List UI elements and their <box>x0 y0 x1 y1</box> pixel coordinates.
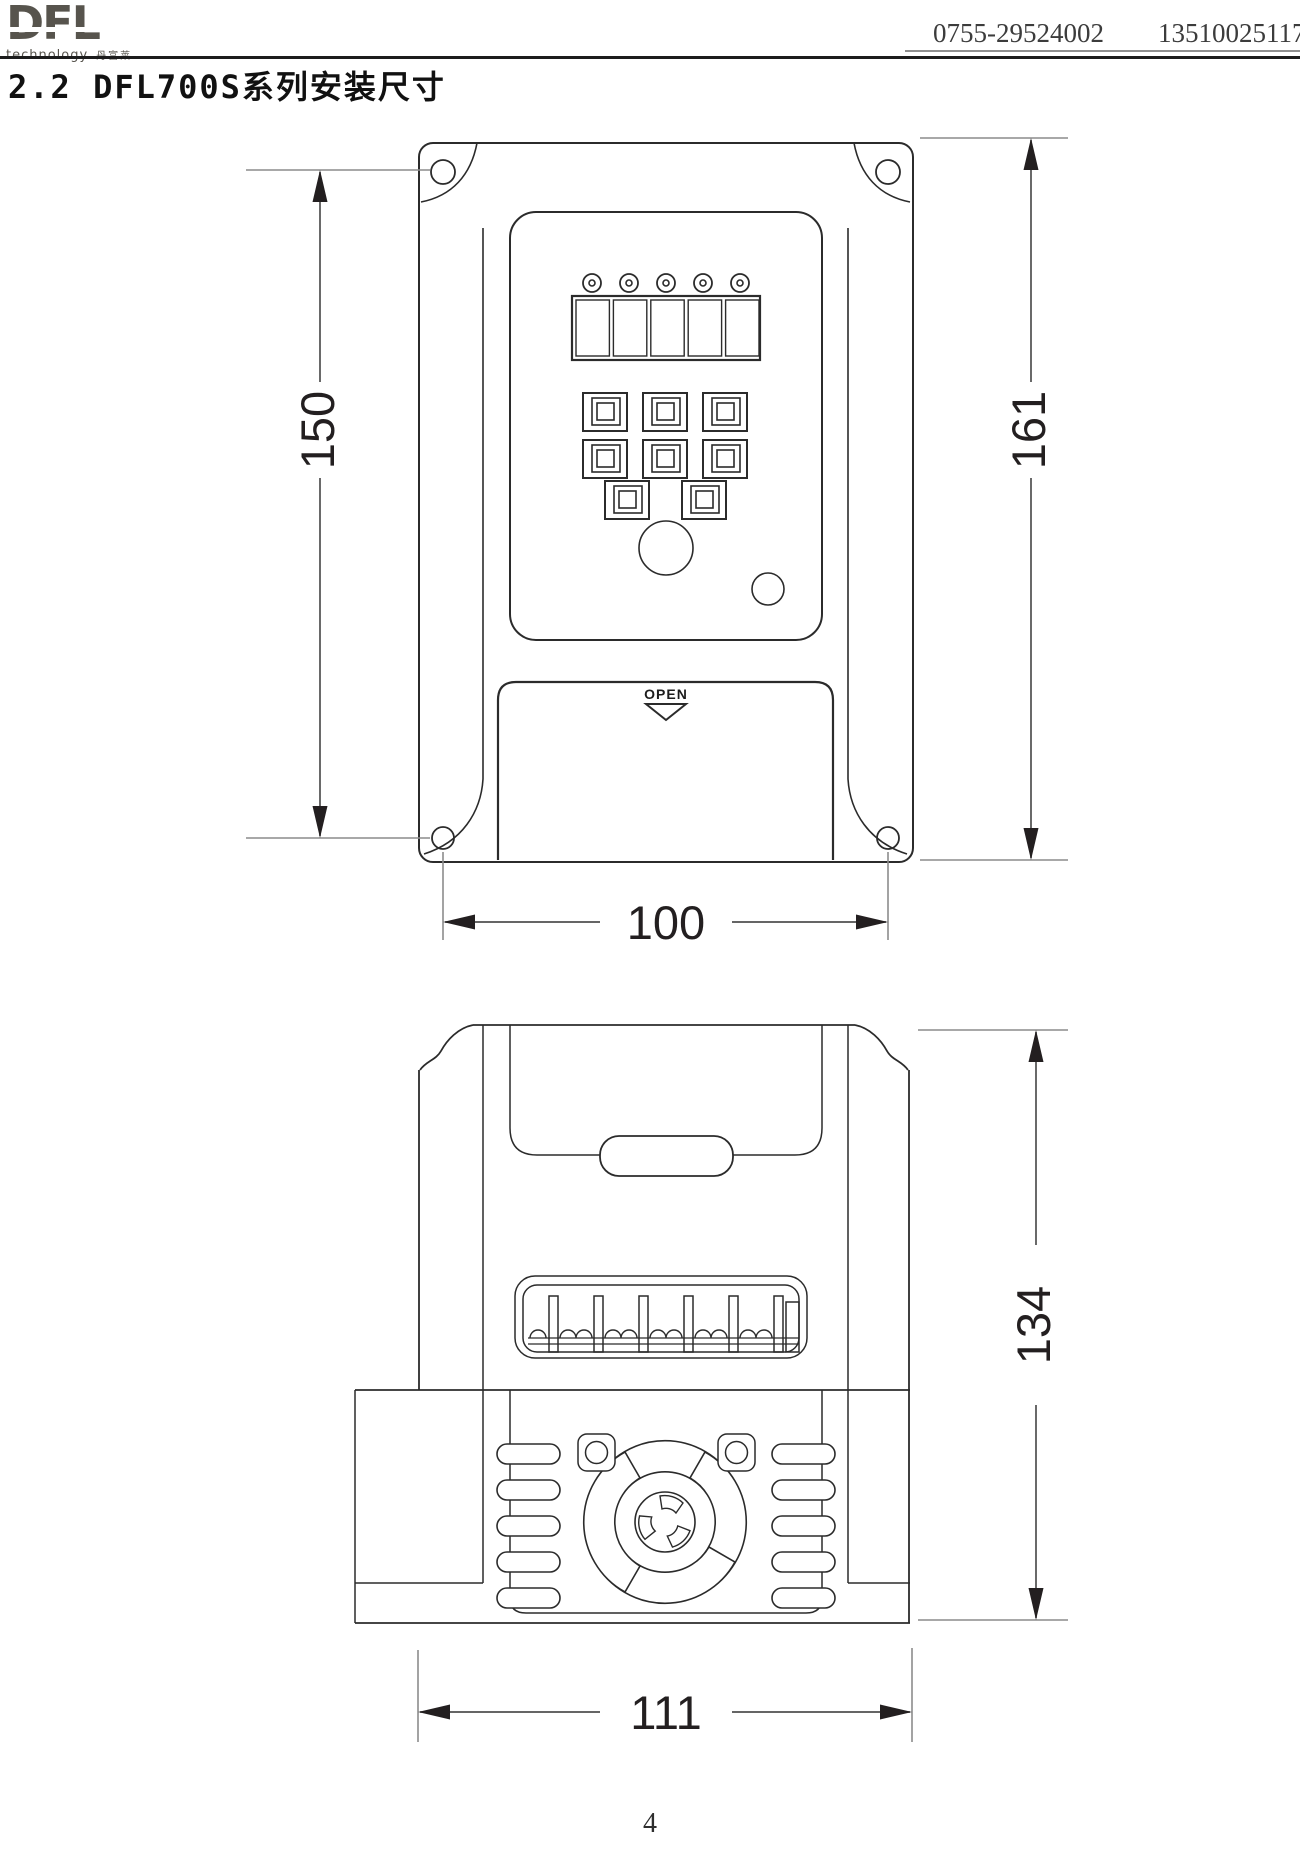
bezel-line-left <box>510 1025 600 1155</box>
bezel-line-right <box>733 1025 822 1155</box>
fan-screw-hole-right <box>726 1442 748 1464</box>
front-view-dimensions: 150 161 100 <box>246 138 1068 949</box>
aux-hole <box>752 573 784 605</box>
dim-mount-width: 100 <box>627 896 705 949</box>
mounting-hole-top-right <box>876 160 900 184</box>
terminal-block <box>515 1276 807 1358</box>
dim-body-height: 134 <box>1007 1286 1060 1364</box>
corner-ear-top-left <box>421 143 477 202</box>
open-label: OPEN <box>644 686 688 702</box>
shoulder-left <box>420 1025 473 1070</box>
page-number: 4 <box>0 1808 1300 1840</box>
shoulder-right <box>855 1025 908 1070</box>
digital-display <box>572 296 760 360</box>
vent-slots-left <box>497 1444 560 1608</box>
fan-screw-hole-left <box>586 1442 608 1464</box>
front-view-drawing: OPEN <box>419 143 913 862</box>
side-view-drawing <box>355 1025 910 1623</box>
mounting-hole-top-left <box>431 160 455 184</box>
corner-ear-top-right <box>854 143 910 202</box>
cover-handle <box>600 1136 733 1176</box>
step-left <box>355 1390 483 1623</box>
side-view-dimensions: 134 111 <box>418 1030 1068 1742</box>
installation-dimension-drawings: OPEN 150 161 100 <box>0 0 1300 1875</box>
dim-total-height: 161 <box>1002 391 1055 469</box>
cooling-fan <box>578 1434 755 1603</box>
step-right <box>848 1390 910 1583</box>
keypad-buttons <box>583 393 747 519</box>
status-led-row <box>583 274 749 292</box>
vent-slots-right <box>772 1444 835 1608</box>
control-knob <box>639 521 693 575</box>
dim-mount-height: 150 <box>291 391 344 469</box>
enclosure-outline <box>419 143 913 862</box>
dim-body-width: 111 <box>630 1686 701 1739</box>
open-arrow-icon <box>646 704 686 720</box>
